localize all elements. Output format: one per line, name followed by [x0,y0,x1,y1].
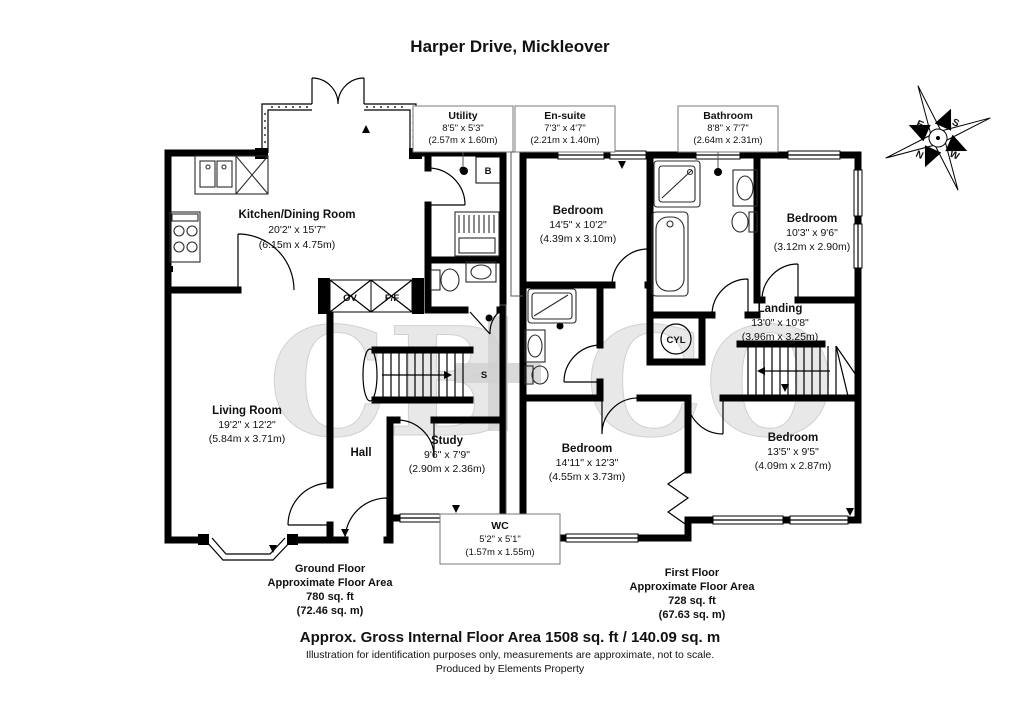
ground-summary-label: Approximate Floor Area [268,577,394,589]
watermark: CB CO [268,295,835,471]
first-summary-sqm: (67.63 sq. m) [659,609,726,621]
ground-summary-sqm: (72.46 sq. m) [297,605,364,617]
ground-summary-floor: Ground Floor [295,563,366,575]
utility-metric: (2.57m x 1.60m) [428,135,497,146]
study-label: Study [431,435,464,447]
bathroom-toilet [732,212,757,232]
store-label: S [481,370,487,381]
fridge-freezer-label: F/F [385,293,399,304]
fridge-freezer-unit: F/F [371,280,412,312]
boiler-label: B [485,166,492,177]
bedroom2-metric: (3.12m x 2.90m) [774,241,850,253]
bathroom-bath [652,212,688,296]
wall-stub [287,534,298,545]
utility-label: Utility [448,110,477,122]
bathroom-shower [654,161,700,207]
living-room-metric: (5.84m x 3.71m) [209,433,285,445]
cylinder-label: CYL [667,335,686,346]
compass-north: N [914,149,925,162]
total-area-text: Approx. Gross Internal Floor Area 1508 s… [300,629,720,646]
oven-label: OV [343,293,357,304]
bedroom3-metric: (4.55m x 3.73m) [549,471,625,483]
wall-stub [198,534,209,545]
first-summary-sqft: 728 sq. ft [668,595,716,607]
study-metric: (2.90m x 2.36m) [409,463,485,475]
wall-marker [341,529,349,537]
bathroom-basin [733,170,757,206]
hall-label: Hall [350,447,371,459]
wc-label: WC [491,520,509,532]
leader-dot [714,168,722,176]
ensuite-callout: En-suite 7'3" x 4'7" (2.21m x 1.40m) [511,106,615,296]
floorplan-page: CB CO Harper Drive, Mickleover [0,0,1020,720]
first-summary-label: Approximate Floor Area [630,581,756,593]
bedroom1-metric: (4.39m x 3.10m) [540,233,616,245]
living-room-imperial: 19'2" x 12'2" [218,419,276,431]
first-summary-floor: First Floor [665,567,720,579]
footer: Approx. Gross Internal Floor Area 1508 s… [300,629,720,675]
bathroom-imperial: 8'8" x 7'7" [707,123,749,134]
wall-stub [318,278,330,314]
bedroom1-imperial: 14'5" x 10'2" [549,219,607,231]
landing-imperial: 13'0" x 10'8" [751,317,809,329]
wall-marker [618,161,626,169]
ground-summary-sqft: 780 sq. ft [306,591,354,603]
bathroom-metric: (2.64m x 2.31m) [693,135,762,146]
ensuite-imperial: 7'3" x 4'7" [544,123,586,134]
living-bay-window [198,534,298,560]
wc-imperial: 5'2" x 5'1" [479,534,521,545]
floorplan-canvas: CB CO Harper Drive, Mickleover [0,0,1020,720]
utility-imperial: 8'5" x 5'3" [442,123,484,134]
kitchen-sink-unit [195,156,268,194]
kitchen-label: Kitchen/Dining Room [239,209,356,221]
wc-metric: (1.57m x 1.55m) [465,547,534,558]
french-doors [312,78,364,104]
ensuite-label: En-suite [544,110,586,122]
bedroom4-imperial: 13'5" x 9'5" [767,446,819,458]
bathroom-label: Bathroom [703,110,753,122]
produced-by-text: Produced by Elements Property [436,663,585,675]
ensuite-shower [528,289,576,323]
wc-basin [466,262,496,282]
wall-marker [269,545,277,553]
study-imperial: 9'6" x 7'9" [424,449,470,461]
wall-stub [412,278,424,314]
wall-marker [846,508,854,516]
ensuite-basin [525,330,545,362]
oven-unit: OV [330,280,371,312]
ground-floor-summary: Ground Floor Approximate Floor Area 780 … [268,563,394,617]
kitchen-imperial: 20'2" x 15'7" [268,224,326,236]
bedroom4-metric: (4.09m x 2.87m) [755,460,831,472]
bedroom3-label: Bedroom [562,443,612,455]
landing-metric: (3.96m x 3.25m) [742,331,818,343]
bedroom2-label: Bedroom [787,213,837,225]
kitchen-metric: (6.15m x 4.75m) [259,239,335,251]
wall-marker [452,505,460,513]
living-room-label: Living Room [212,405,282,417]
wall-stub [255,148,268,159]
leader-dot [460,167,467,174]
disclaimer-text: Illustration for identification purposes… [306,649,714,661]
hob [167,212,200,272]
wc-toilet [431,269,459,291]
wall-marker [362,125,370,133]
ensuite-metric: (2.21m x 1.40m) [530,135,599,146]
door-stop-dot [486,315,493,322]
bedroom2-imperial: 10'3" x 9'6" [786,227,838,239]
landing-label: Landing [758,303,803,315]
bedroom4-label: Bedroom [768,432,818,444]
kitchen-bay-window [255,78,422,159]
bedroom3-imperial: 14'11" x 12'3" [556,457,619,469]
washing-machine [455,212,499,256]
first-floor-summary: First Floor Approximate Floor Area 728 s… [630,567,756,621]
page-title: Harper Drive, Mickleover [410,37,610,56]
bedroom1-label: Bedroom [553,205,603,217]
